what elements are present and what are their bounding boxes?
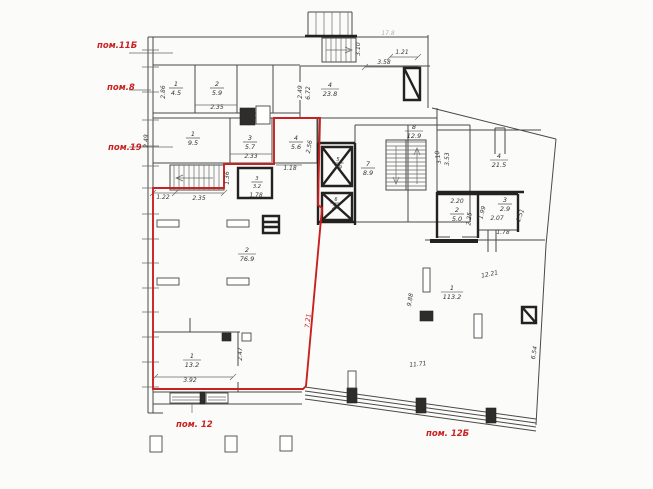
room-area: 3.2 <box>253 184 261 190</box>
room-number: 4 <box>328 81 332 89</box>
dim-label: 2.07 <box>490 215 504 222</box>
room-number: 8 <box>412 123 416 131</box>
room-label: 1113.2 <box>441 284 463 301</box>
room-label: 421.5 <box>490 152 508 169</box>
room-label: 276.9 <box>238 246 256 263</box>
dim-label: 1.78 <box>249 192 263 199</box>
room-number: 3 <box>255 176 258 182</box>
dim-label: 3.58 <box>377 59 391 66</box>
room-number: 1 <box>190 352 194 360</box>
room-label: 19.5 <box>186 130 200 147</box>
room-area: 12.9 <box>407 132 421 140</box>
premises-label: пом.11Б <box>97 41 138 51</box>
red-boundary-dim: 7.21 <box>303 313 312 328</box>
dim-label: 12.21 <box>481 269 499 279</box>
dim-label: 1.22 <box>156 194 170 201</box>
floor-plan-drawing: 2.862.352.492.332.561.181.781.222.351.36… <box>0 0 653 489</box>
room-label: 78.9 <box>361 160 375 177</box>
dim-label: 2.33 <box>244 153 258 160</box>
dim-label: 2.20 <box>450 198 464 205</box>
room-area: 113.2 <box>443 293 462 301</box>
column <box>420 311 433 321</box>
dim-label: 3.10 <box>434 150 443 165</box>
room-label: 35.7 <box>243 134 257 151</box>
room-label: 113.2 <box>183 352 201 369</box>
room-label: 25.0 <box>450 206 464 223</box>
room-number: 2 <box>215 80 219 88</box>
staircase-top <box>305 12 357 62</box>
dim-label: 2.35 <box>192 195 206 202</box>
dim-label: 1.36 <box>224 171 231 185</box>
dim-label: 2.49 <box>297 85 304 99</box>
walls-thin <box>129 35 556 431</box>
room-area: 2.9 <box>500 205 510 213</box>
room-labels: 14.525.919.535.745.633.2423.878.9812.952… <box>169 80 512 369</box>
room-label: 45.6 <box>289 134 303 151</box>
room-number: 4 <box>294 134 298 142</box>
room-area: 2.9 <box>334 165 342 171</box>
dim-label: 6.72 <box>305 86 312 100</box>
dim-label: 17.8 <box>381 30 395 37</box>
dim-label: 2.56 <box>305 139 314 154</box>
window-post <box>486 408 496 423</box>
dim-label: 3.92 <box>183 377 197 384</box>
dim-label: 1.51 <box>515 208 526 223</box>
dim-label: 2.47 <box>237 347 244 361</box>
premises-label: пом.8 <box>107 83 135 93</box>
room-number: 7 <box>366 160 371 168</box>
dim-label: 3.10 <box>355 42 362 56</box>
room-label: 14.5 <box>169 80 183 97</box>
room-area: 21.5 <box>492 161 506 169</box>
staircase-main <box>386 140 426 190</box>
room-area: 4.5 <box>171 89 181 97</box>
room-label: 25.9 <box>210 80 224 97</box>
dim-label: 1.78 <box>496 229 510 236</box>
room-area: 8.9 <box>363 169 373 177</box>
room-label: 32.9 <box>498 196 512 213</box>
room-area: 2.6 <box>332 205 340 211</box>
premises-label: пом. 12 <box>176 420 213 430</box>
dim-label: 3.53 <box>444 152 451 166</box>
room-area: 13.2 <box>185 361 199 369</box>
walls-thick <box>238 68 536 323</box>
room-number: 5 <box>336 157 339 163</box>
room-area: 5.6 <box>291 143 301 151</box>
duct-shaft <box>240 108 255 125</box>
room-number: 2 <box>245 246 249 254</box>
dim-label: 6.54 <box>530 345 539 360</box>
room-number: 1 <box>174 80 178 88</box>
room-number: 2 <box>455 206 459 214</box>
pier <box>150 436 162 452</box>
window-post <box>416 398 426 413</box>
room-number: 3 <box>248 134 252 142</box>
room-number: 1 <box>191 130 195 138</box>
premises-label: пом.19 <box>108 143 142 153</box>
window-post <box>347 388 357 403</box>
room-label: 33.2 <box>251 176 262 190</box>
dim-label: 2.35 <box>210 104 224 111</box>
dim-label: 9.88 <box>406 292 415 307</box>
dim-label: 2.25 <box>465 212 473 226</box>
dim-label: 1.21 <box>395 49 408 56</box>
room-number: 4 <box>497 152 501 160</box>
room-label: 423.8 <box>321 81 339 98</box>
room-area: 5.7 <box>245 143 256 151</box>
room-number: 3 <box>503 196 507 204</box>
staircase-left <box>170 165 224 190</box>
room-area: 76.9 <box>240 255 254 263</box>
pier <box>280 436 292 451</box>
floor-plan-page: 2.862.352.492.332.561.181.781.222.351.36… <box>0 0 653 489</box>
room-area: 9.5 <box>188 139 198 147</box>
room-area: 5.0 <box>452 215 462 223</box>
dim-label: 11.71 <box>409 360 427 369</box>
room-area: 5.9 <box>212 89 222 97</box>
dim-label: 2.86 <box>160 85 167 99</box>
pier <box>225 436 237 452</box>
dim-label: 2.49 <box>143 134 150 148</box>
dim-label: 1.18 <box>283 165 297 172</box>
room-number: 6 <box>334 197 337 203</box>
room-number: 1 <box>450 284 454 292</box>
room-area: 23.8 <box>323 90 337 98</box>
premises-label: пом. 12Б <box>426 429 470 439</box>
